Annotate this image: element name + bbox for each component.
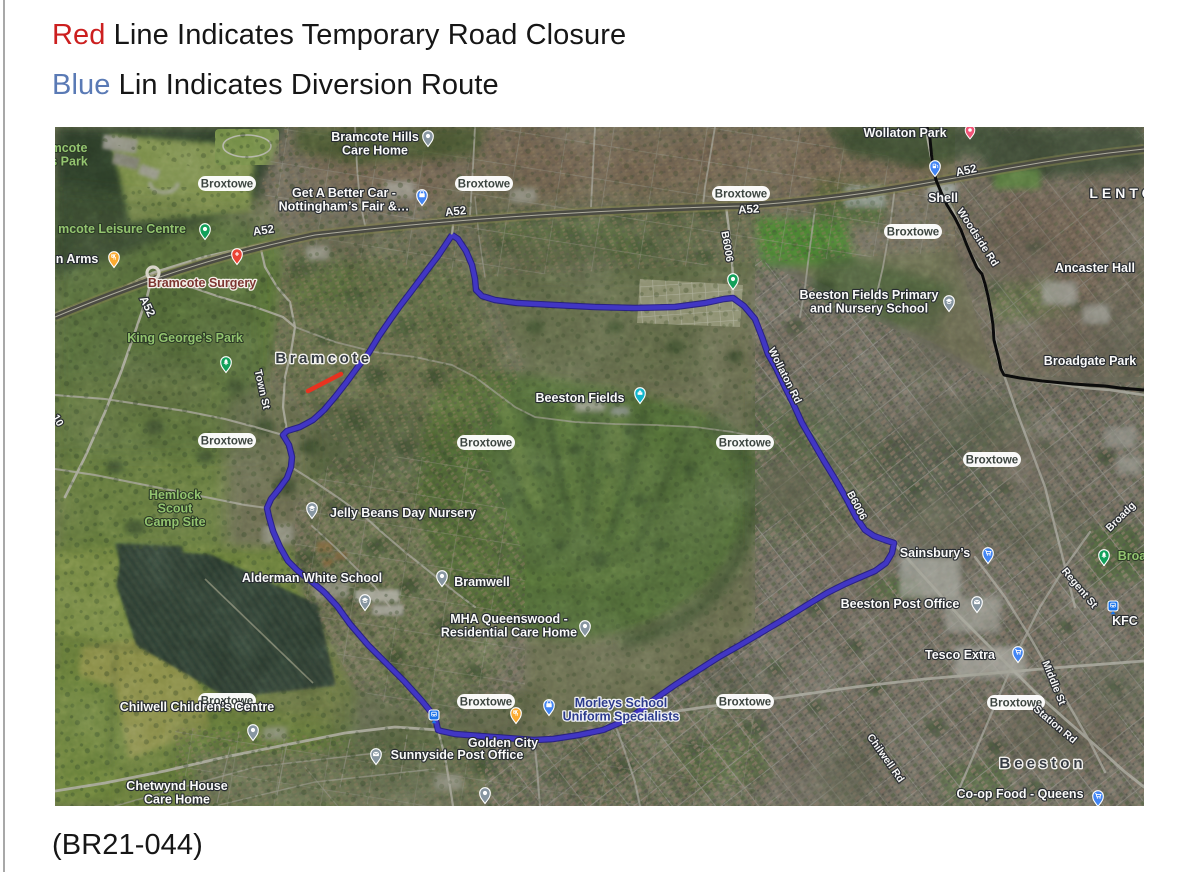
svg-text:Co-op Food - Queens: Co-op Food - Queens	[956, 787, 1083, 801]
svg-text:Broadgate Park: Broadgate Park	[1044, 354, 1136, 368]
svg-text:MHA Queenswood -Residential Ca: MHA Queenswood -Residential Care Home	[441, 612, 577, 640]
svg-text:Broxtowe: Broxtowe	[715, 189, 767, 201]
svg-text:Bramcote: Bramcote	[275, 350, 372, 367]
svg-text:Tesco Extra: Tesco Extra	[925, 648, 996, 662]
svg-text:Beeston Fields: Beeston Fields	[536, 391, 625, 405]
svg-text:Beeston Fields Primaryand Nurs: Beeston Fields Primaryand Nursery School	[800, 288, 939, 316]
svg-text:Bramwell: Bramwell	[454, 575, 510, 589]
svg-text:Sainsbury’s: Sainsbury’s	[900, 546, 970, 560]
svg-text:mcotes Park: mcotes Park	[55, 141, 88, 169]
svg-text:Broxtowe: Broxtowe	[460, 438, 512, 450]
svg-text:n Arms: n Arms	[56, 252, 99, 266]
svg-text:Bramcote HillsCare Home: Bramcote HillsCare Home	[331, 130, 419, 158]
svg-text:Chilwell Children’s Centre: Chilwell Children’s Centre	[120, 700, 274, 714]
svg-text:Broxtowe: Broxtowe	[458, 179, 510, 191]
svg-text:KFC: KFC	[1112, 614, 1138, 628]
svg-text:Broxtowe: Broxtowe	[460, 697, 512, 709]
svg-text:Broxtowe: Broxtowe	[966, 455, 1018, 467]
svg-text:Broxtowe: Broxtowe	[201, 436, 253, 448]
svg-text:Broxtowe: Broxtowe	[201, 179, 253, 191]
svg-text:A52: A52	[445, 205, 467, 219]
svg-text:Broa: Broa	[1118, 549, 1144, 563]
svg-text:A52: A52	[738, 203, 760, 216]
svg-text:LENTON: LENTON	[1089, 185, 1144, 201]
svg-text:Beeston Post Office: Beeston Post Office	[841, 597, 960, 611]
svg-text:Ancaster Hall: Ancaster Hall	[1055, 261, 1135, 275]
svg-text:Alderman White School: Alderman White School	[242, 571, 382, 585]
svg-text:Bramcote Surgery: Bramcote Surgery	[148, 276, 256, 290]
svg-text:Broxtowe: Broxtowe	[719, 438, 771, 450]
svg-text:Shell: Shell	[928, 191, 958, 205]
svg-text:Wollaton Park: Wollaton Park	[863, 127, 946, 140]
svg-text:mcote Leisure Centre: mcote Leisure Centre	[58, 222, 186, 236]
svg-text:Jelly Beans Day Nursery: Jelly Beans Day Nursery	[330, 506, 476, 520]
svg-text:Beeston: Beeston	[999, 755, 1086, 772]
svg-text:Morleys SchoolUniform Speciali: Morleys SchoolUniform Specialists	[563, 696, 680, 724]
svg-text:Get A Better Car -Nottingham’s: Get A Better Car -Nottingham’s Fair &…	[279, 186, 410, 214]
svg-text:King George’s Park: King George’s Park	[127, 331, 243, 345]
svg-text:Sunnyside Post Office: Sunnyside Post Office	[391, 748, 524, 762]
svg-text:Broxtowe: Broxtowe	[887, 227, 939, 239]
svg-text:Broxtowe: Broxtowe	[719, 697, 771, 709]
